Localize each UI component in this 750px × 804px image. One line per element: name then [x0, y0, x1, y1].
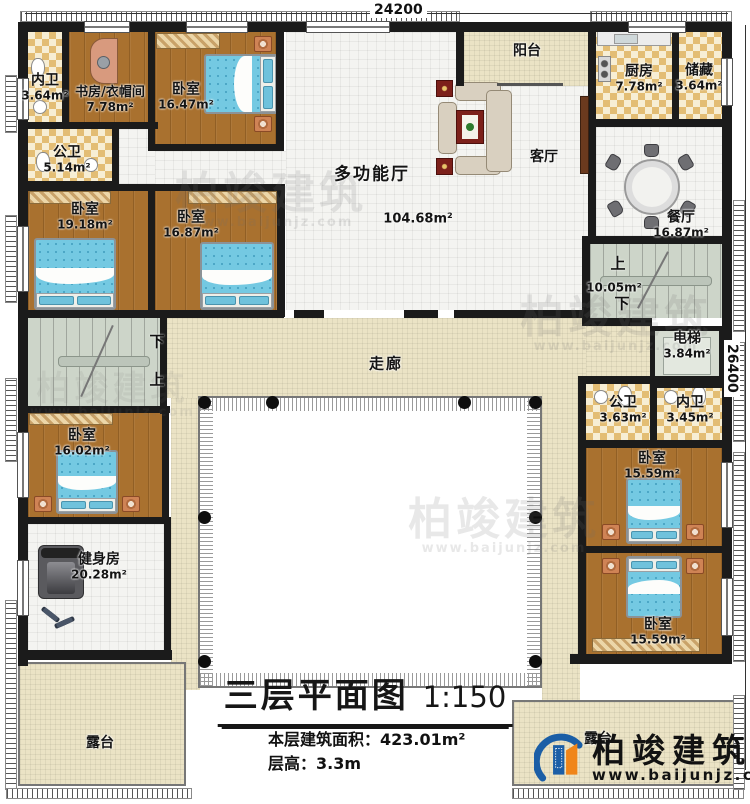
side-table: [436, 158, 453, 175]
label-elevator: 电梯3.84m²: [663, 331, 710, 360]
wall: [578, 440, 732, 448]
bed: [204, 54, 278, 114]
logo: 柏竣建筑 www.baijunjz.com: [534, 733, 750, 785]
wardrobe: [188, 191, 277, 204]
wall: [650, 382, 657, 444]
bed-sheet: [202, 270, 272, 285]
stair-landing-left: [58, 356, 150, 367]
room-elevator-lobby: [586, 326, 650, 376]
bed-headboard: [628, 528, 680, 542]
wall: [582, 318, 652, 326]
bed-sheet: [36, 268, 114, 284]
courtyard-void: [198, 396, 542, 688]
bed: [626, 556, 682, 618]
logo-building-icon: [534, 733, 586, 785]
pillow: [77, 296, 112, 305]
eave-hatch-bottom-left: [6, 788, 192, 799]
wall: [404, 310, 438, 318]
pillow: [89, 501, 114, 509]
label-stairs-right-down: 下: [614, 293, 629, 314]
column: [266, 396, 279, 409]
coffee-table: [456, 110, 484, 144]
eave-hatch-left-2: [5, 215, 17, 303]
eave-hatch-right-3: [733, 452, 745, 662]
pillow: [263, 59, 273, 83]
wall: [148, 28, 155, 150]
wall: [456, 22, 464, 86]
wall: [18, 122, 158, 129]
armchair-row: [438, 102, 457, 154]
drawing-title: 三层平面图 1:150: [218, 668, 513, 727]
label-dining: 餐厅16.87m²: [653, 210, 709, 239]
chair: [644, 144, 659, 157]
label-terrace-left: 露台: [86, 736, 114, 752]
stove: [598, 56, 611, 82]
label-public-bath-right: 公卫3.63m²: [599, 395, 646, 424]
eave-hatch-left-1: [5, 75, 17, 133]
corridor-left-strip: [171, 398, 200, 690]
window: [721, 578, 733, 636]
eave-hatch-bottom-right: [512, 788, 744, 799]
wall: [18, 650, 172, 660]
bed-sheet: [58, 476, 116, 490]
bed-headboard: [36, 293, 114, 308]
wall: [18, 406, 170, 413]
bed: [56, 450, 118, 514]
bed-sheet: [234, 56, 252, 112]
label-inner-bath-right: 内卫3.45m²: [666, 395, 713, 424]
dimension-line-right: [745, 25, 746, 770]
nightstand: [122, 496, 140, 512]
window: [17, 226, 29, 292]
window: [17, 432, 29, 498]
floor-plan: 24200 26400: [0, 0, 750, 804]
label-balcony: 阳台: [513, 44, 541, 60]
column: [198, 396, 211, 409]
pillow: [205, 296, 236, 305]
column: [529, 655, 542, 668]
label-hall-area: 104.68m²: [383, 213, 452, 228]
label-kitchen: 厨房7.78m²: [615, 64, 662, 93]
wall: [578, 546, 732, 553]
label-storage: 储藏3.64m²: [675, 63, 722, 92]
title-area-line: 本层建筑面积：423.01m²: [268, 726, 465, 750]
wall: [454, 310, 586, 318]
bed-headboard: [260, 56, 276, 112]
column: [458, 396, 471, 409]
window: [721, 58, 733, 106]
eave-hatch-left-3: [5, 378, 17, 462]
window: [17, 560, 29, 616]
title-text: 三层平面图: [224, 668, 409, 717]
bed-headboard: [58, 498, 116, 512]
wardrobe: [156, 33, 220, 49]
bed: [626, 478, 682, 544]
window: [306, 21, 390, 33]
wall: [578, 376, 586, 662]
dining-table: [624, 159, 680, 215]
label-bedroom-bottomleft: 卧室16.02m²: [54, 428, 110, 457]
logo-name: 柏竣建筑: [592, 734, 750, 769]
bed: [200, 242, 274, 310]
sliding-door: [497, 83, 563, 86]
nightstand: [254, 116, 272, 132]
nightstand: [686, 558, 704, 574]
label-bedroom-top: 卧室16.47m²: [158, 82, 214, 111]
window: [186, 21, 248, 33]
bed-sheet: [628, 506, 680, 520]
pillow: [239, 296, 270, 305]
wall: [588, 22, 596, 242]
label-public-bath-topleft: 公卫5.14m²: [43, 145, 90, 174]
label-stairs-left-up: 上: [149, 369, 164, 390]
pillow: [656, 531, 678, 539]
wall: [18, 310, 284, 318]
terrace-left: [18, 662, 186, 786]
railing-left: [200, 398, 213, 686]
column: [198, 655, 211, 668]
window: [84, 21, 130, 33]
wall: [18, 517, 170, 524]
logo-url: www.baijunjz.com: [592, 768, 750, 784]
label-bedroom-left2: 卧室16.87m²: [163, 210, 219, 239]
wall: [276, 28, 284, 150]
label-stairs-right-up: 上: [610, 253, 625, 274]
title-height-line: 层高：3.3m: [268, 750, 361, 774]
label-multifunction-hall: 多功能厅: [334, 165, 410, 184]
wall: [294, 310, 324, 318]
pillow: [656, 561, 678, 569]
bed-sheet: [628, 580, 680, 594]
nightstand: [34, 496, 52, 512]
label-study: 书房/衣帽间7.78m²: [75, 86, 145, 114]
dimension-top: 24200: [370, 2, 427, 18]
bed-headboard: [202, 293, 272, 308]
label-gym: 健身房20.28m²: [71, 552, 127, 581]
column: [529, 511, 542, 524]
label-corridor: 走廊: [369, 356, 403, 373]
label-stairs-left-down: 下: [149, 331, 164, 352]
railing-right: [527, 398, 540, 686]
nightstand: [686, 524, 704, 540]
column: [198, 511, 211, 524]
wall: [148, 184, 155, 317]
bed: [34, 238, 116, 310]
window: [628, 21, 686, 33]
wall: [112, 122, 119, 188]
bed-headboard: [628, 558, 680, 572]
room-hall-extension: [155, 151, 286, 184]
dimension-right: 26400: [724, 340, 740, 397]
eave-hatch-right-1: [733, 200, 745, 332]
wall: [148, 144, 284, 151]
column: [529, 396, 542, 409]
label-bedroom-right1: 卧室15.59m²: [624, 451, 680, 480]
label-inner-bath-topleft: 内卫3.64m²: [21, 73, 68, 102]
window: [721, 462, 733, 528]
wall: [162, 406, 169, 524]
wall: [596, 119, 732, 127]
tv-cabinet: [580, 96, 589, 174]
nightstand: [254, 36, 272, 52]
nightstand: [602, 558, 620, 574]
plant: [466, 123, 474, 131]
pillow: [631, 561, 653, 569]
wall: [570, 654, 732, 664]
wardrobe: [29, 413, 113, 425]
wall: [164, 517, 171, 660]
sofa-main: [486, 90, 512, 172]
pillow: [631, 531, 653, 539]
pillow: [39, 296, 74, 305]
pillow: [61, 501, 86, 509]
eave-hatch-left-4: [5, 600, 17, 790]
wall: [277, 184, 285, 317]
railing-top: [200, 398, 540, 411]
kitchen-sink: [614, 34, 638, 44]
desk-chair: [97, 56, 110, 69]
label-bedroom-right2: 卧室15.59m²: [630, 617, 686, 646]
label-bedroom-left1: 卧室19.18m²: [57, 202, 113, 231]
wall: [160, 310, 167, 414]
nightstand: [602, 524, 620, 540]
label-living: 客厅: [530, 150, 558, 166]
title-scale: 1:150: [423, 680, 507, 714]
pillow: [263, 86, 273, 110]
side-table: [436, 80, 453, 97]
